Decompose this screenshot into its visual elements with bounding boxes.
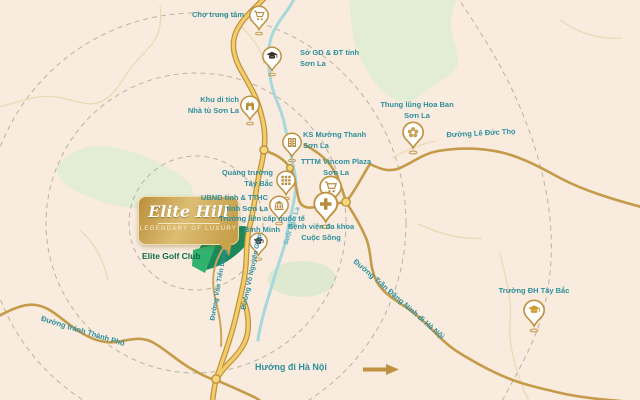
logo-divider: [158, 223, 220, 224]
grid-icon: [281, 175, 290, 184]
direction-label: Hướng đi Hà Nội: [255, 362, 327, 372]
ubnd-tinh-label: UBND tỉnh & TTHC tỉnh Sơn La: [201, 193, 268, 215]
ks-muong-thanh-pin: [281, 132, 303, 168]
quang-truong-tay-bac-label: Quảng trường Tây Bắc: [222, 168, 273, 190]
so-gd-dt-label: Sở GD & ĐT tỉnh Sơn La: [300, 48, 359, 70]
golf-club-label: Elite Golf Club: [142, 251, 201, 261]
benh-vien-cuoc-song-label: Bệnh viện đa khoa Cuộc Sống: [288, 222, 354, 244]
cho-trung-tam-pin: [248, 5, 270, 41]
tttm-vincom-plaza-label: TTTM Vincom Plaza Sơn La: [301, 157, 371, 179]
junction-node: [212, 375, 220, 383]
thung-lung-hoa-ban-label: Thung lũng Hoa Ban Sơn La: [380, 100, 453, 122]
khu-di-tich-nha-tu-label: Khu di tích Nhà tù Sơn La: [188, 95, 239, 117]
junction-node: [260, 146, 268, 154]
truong-dh-tay-bac-pin: [522, 299, 546, 338]
ks-muong-thanh-label: KS Mường Thanh Sơn La: [303, 130, 366, 152]
truong-dh-tay-bac-label: Trường ĐH Tây Bắc: [499, 286, 570, 297]
location-map: Elite Hill LEGENDARY OF LUXURY Elite Gol…: [0, 0, 640, 400]
khu-di-tich-nha-tu-pin: [239, 95, 261, 131]
thung-lung-hoa-ban-pin: [401, 121, 425, 160]
so-gd-dt-pin: [261, 46, 283, 82]
cho-trung-tam-label: Chợ trung tâm: [192, 10, 244, 21]
